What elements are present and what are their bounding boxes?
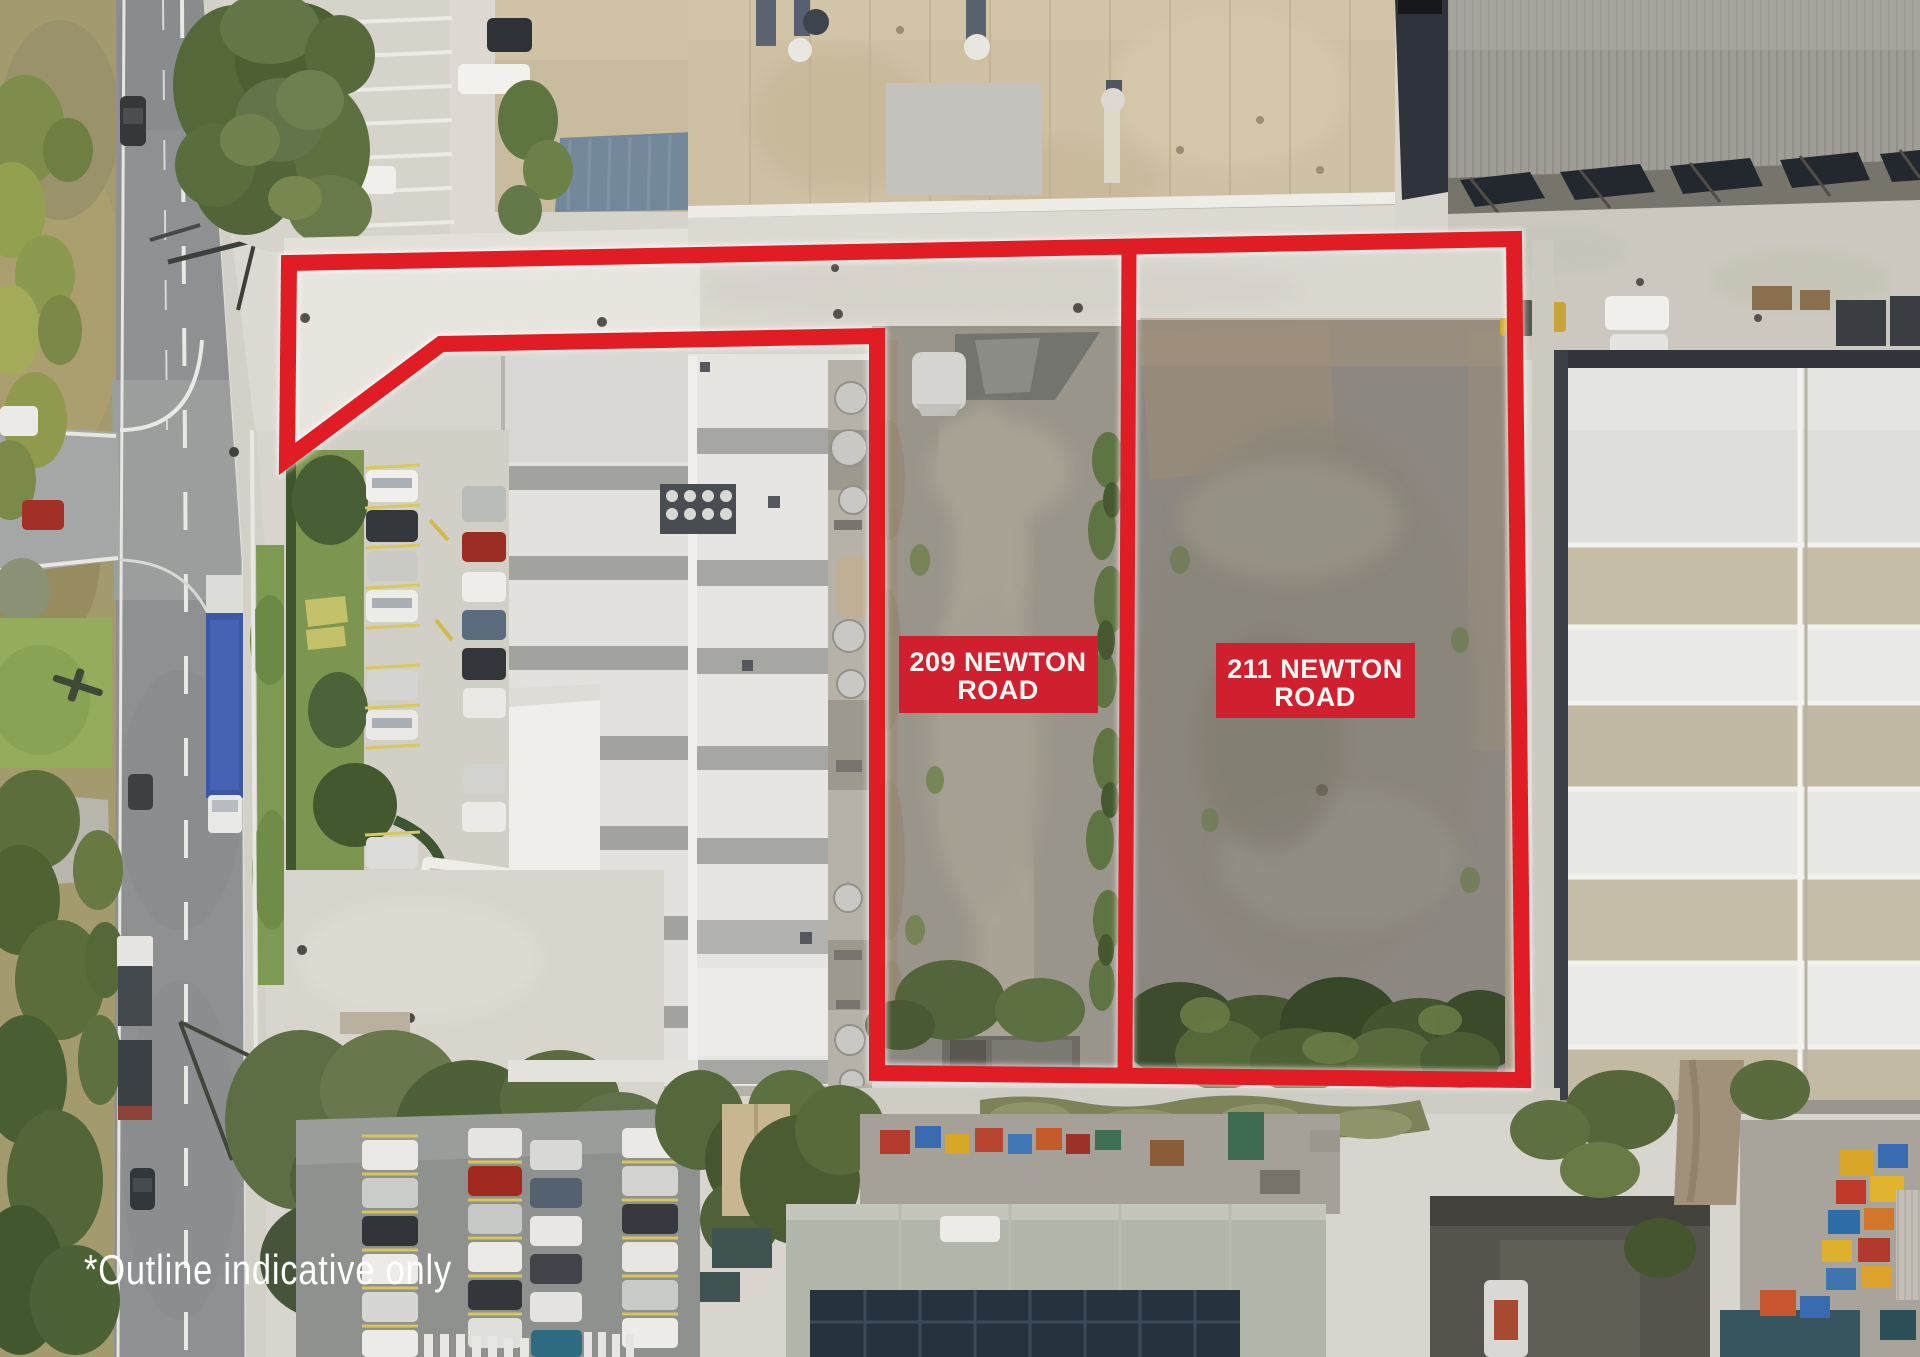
svg-text:ROAD: ROAD	[1274, 682, 1356, 712]
svg-text:*Outline indicative only: *Outline indicative only	[84, 1246, 452, 1293]
svg-text:209 NEWTON: 209 NEWTON	[909, 647, 1086, 677]
svg-text:ROAD: ROAD	[957, 675, 1039, 705]
svg-text:211 NEWTON: 211 NEWTON	[1227, 654, 1403, 684]
